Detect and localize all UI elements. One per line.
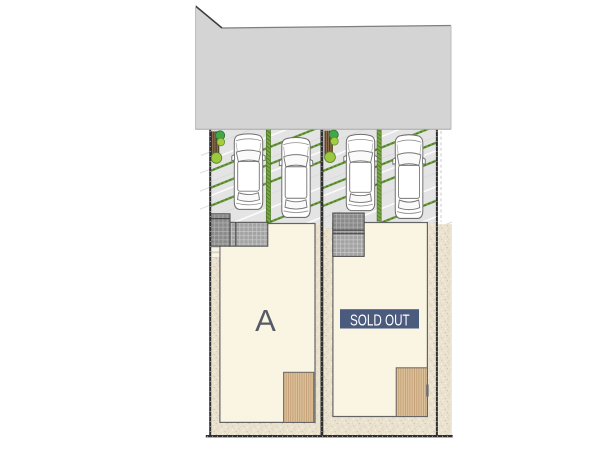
svg-text:SOLD OUT: SOLD OUT (350, 311, 410, 329)
svg-text:A: A (255, 303, 276, 338)
